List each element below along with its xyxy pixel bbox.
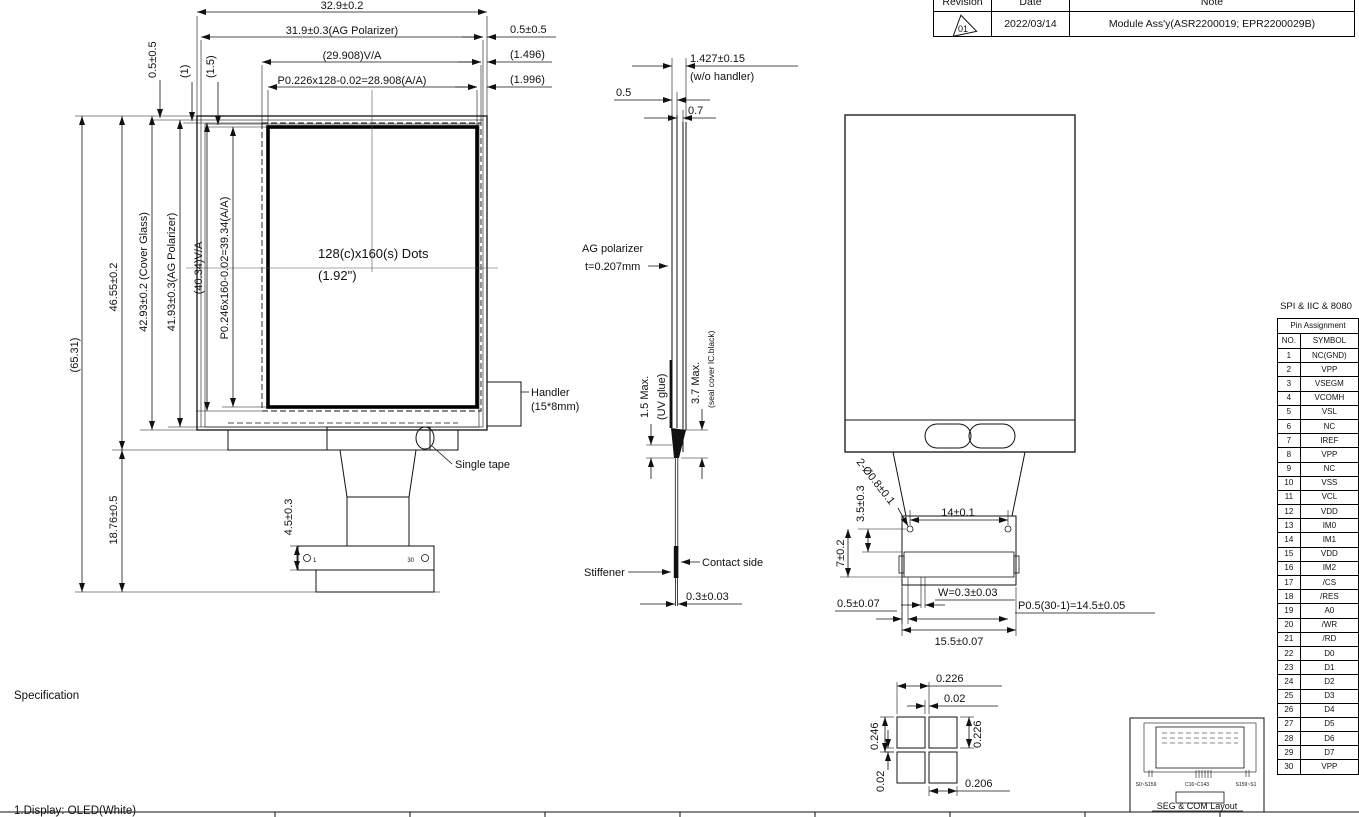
dim-seal-note: (seal cover IC.black): [706, 330, 716, 408]
pin-symbol: D5: [1300, 717, 1358, 731]
dot-pitch-detail: 0.226 0.02 0.246 0.226 0.02 0.206: [869, 673, 1010, 796]
pin-table-header: Pin Assignment: [1278, 319, 1359, 334]
pin-row: 3 VSEGM: [1278, 377, 1359, 391]
dim-pitch-x: 0.226: [936, 673, 964, 685]
pin-symbol: /WR: [1300, 618, 1358, 632]
front-view-top-dimensions: 32.9±0.2 31.9±0.3(AG Polarizer) (29.908)…: [147, 0, 556, 127]
pin-col-no: NO.: [1278, 334, 1301, 349]
seg-com-title: SEG & COM Layout: [1157, 801, 1238, 811]
drawing-sheet: 128(c)x160(s) Dots (1.92") 1 30 Handler …: [0, 0, 1359, 817]
pin-symbol: /CS: [1300, 576, 1358, 590]
pin-table-title: SPI & IIC & 8080: [1272, 301, 1359, 312]
pin-number: 27: [1278, 717, 1301, 731]
pin-row: 9 NC: [1278, 462, 1359, 476]
pin-row: 18 /RES: [1278, 590, 1359, 604]
pin-symbol: NC: [1300, 419, 1358, 433]
dim-height-polarizer: 41.93±0.3(AG Polarizer): [166, 213, 178, 332]
dim-right-1: 0.5±0.5: [510, 24, 547, 36]
pin-number: 22: [1278, 646, 1301, 660]
hole-left: [907, 526, 913, 532]
pin-number: 24: [1278, 675, 1301, 689]
front-view-left-dimensions: (65.31) 46.55±0.2 42.93±0.2 (Cover Glass…: [69, 116, 440, 592]
dim-right-3: (1.996): [510, 74, 545, 86]
pin-symbol: D0: [1300, 646, 1358, 660]
pin-symbol: VSS: [1300, 476, 1358, 490]
pin1-mark: [304, 555, 311, 562]
pin-row: 22 D0: [1278, 646, 1359, 660]
dim-right-2: (1.496): [510, 49, 545, 61]
pin-symbol: VPP: [1300, 448, 1358, 462]
dim-thickness-note: (w/o handler): [690, 71, 754, 83]
stiffener-label: Stiffener: [584, 567, 625, 579]
specification-title: Specification: [14, 688, 177, 704]
pin-symbol: D6: [1300, 732, 1358, 746]
dim-height-aa: P0.246x160-0.02=39.34(A/A): [219, 197, 231, 340]
pin-number: 13: [1278, 519, 1301, 533]
pin-number: 10: [1278, 476, 1301, 490]
revision-mark-cell: 01: [934, 12, 992, 37]
pin-symbol: VDD: [1300, 505, 1358, 519]
active-area-outline: [268, 127, 477, 407]
pin-row: 2 VPP: [1278, 363, 1359, 377]
dim-width-total: 32.9±0.2: [321, 0, 364, 12]
dim-hole-span: 14±0.1: [941, 507, 975, 519]
pin-number: 28: [1278, 732, 1301, 746]
pin-symbol: IM2: [1300, 561, 1358, 575]
pin-number: 11: [1278, 490, 1301, 504]
seg-com-layout: S0~S159 C16~C143 S159~S1 SEG & COM Layou…: [1130, 718, 1264, 812]
pin-number: 26: [1278, 703, 1301, 717]
pin-symbol: D4: [1300, 703, 1358, 717]
dim-fpc-thickness: 0.3±0.03: [686, 591, 729, 603]
pin-number: 20: [1278, 618, 1301, 632]
revision-triangle-icon: 01: [946, 13, 980, 36]
revision-row: 01 2022/03/14 Module Ass'y(ASR2200019; E…: [934, 12, 1355, 37]
pin-symbol: A0: [1300, 604, 1358, 618]
pin-number: 17: [1278, 576, 1301, 590]
pin-table-body: 1 NC(GND) 2 VPP 3 VSEGM 4 VCOMH 5 VSL: [1278, 349, 1359, 775]
pin-symbol: D1: [1300, 661, 1358, 675]
pin-number: 6: [1278, 419, 1301, 433]
pin-row: 21 /RD: [1278, 632, 1359, 646]
pin-symbol: VCOMH: [1300, 391, 1358, 405]
dim-topleft-3: (1.5): [205, 55, 217, 78]
dim-fpc-width: 15.5±0.07: [935, 636, 984, 648]
pin-row: 19 A0: [1278, 604, 1359, 618]
pin-row: 27 D5: [1278, 717, 1359, 731]
pin-number: 30: [1278, 760, 1301, 774]
dim-fpc-length: 18.76±0.5: [108, 496, 120, 545]
pin-symbol: VPP: [1300, 760, 1358, 774]
pin-row: 1 NC(GND): [1278, 349, 1359, 363]
dim-height-total: (65.31): [69, 338, 81, 373]
front-view: 128(c)x160(s) Dots (1.92") 1 30 Handler …: [186, 90, 579, 592]
polarizer-section: [670, 360, 673, 428]
pin-row: 12 VDD: [1278, 505, 1359, 519]
pin-number: 12: [1278, 505, 1301, 519]
pin-symbol: /RD: [1300, 632, 1358, 646]
pin-row: 20 /WR: [1278, 618, 1359, 632]
pin-symbol: IREF: [1300, 434, 1358, 448]
fpc-neck: [340, 450, 416, 497]
polarizer-label: AG polarizer: [582, 243, 643, 255]
dim-finger-width: W=0.3±0.03: [938, 587, 998, 599]
dim-dot-h: 0.226: [972, 720, 984, 748]
dim-fpc-height: 7±0.2: [835, 540, 847, 567]
pin-number: 25: [1278, 689, 1301, 703]
pin-row: 16 IM2: [1278, 561, 1359, 575]
com-label: C16~C143: [1185, 782, 1209, 788]
viewing-area-outline: [262, 123, 481, 411]
dim-back-glass: 0.7: [688, 105, 703, 117]
seal-wedge: [671, 428, 686, 458]
pin-row: 7 IREF: [1278, 434, 1359, 448]
pin-symbol: D2: [1300, 675, 1358, 689]
hole-right: [1005, 526, 1011, 532]
mechanical-drawing: 128(c)x160(s) Dots (1.92") 1 30 Handler …: [0, 0, 1359, 817]
specification-block: Specification 1.Display: OLED(White) 2.D…: [14, 655, 177, 817]
dim-seal: 3.7 Max.: [690, 362, 702, 404]
pin-col-symbol: SYMBOL: [1300, 334, 1358, 349]
display-size-label: 128(c)x160(s) Dots: [318, 246, 429, 261]
pin-number: 8: [1278, 448, 1301, 462]
pin-symbol: IM1: [1300, 533, 1358, 547]
dim-finger-pitch: P0.5(30-1)=14.5±0.05: [1018, 600, 1125, 612]
dim-thickness: 1.427±0.15: [690, 53, 745, 65]
pin-symbol: VSL: [1300, 405, 1358, 419]
seg-right-label: S159~S1: [1236, 782, 1257, 788]
dim-uv-glue-note: (UV glue): [656, 374, 668, 420]
pin-symbol: VPP: [1300, 363, 1358, 377]
pin-symbol: D3: [1300, 689, 1358, 703]
back-view: 14±0.1 3.5±0.3 7±0.2 2-Ø0.8±0.1 W=0.3±0.…: [835, 115, 1155, 648]
dim-finger-margin: 0.5±0.07: [837, 598, 880, 610]
pin30-mark: [422, 555, 429, 562]
date-header: Date: [992, 0, 1070, 12]
pin-row: 23 D1: [1278, 661, 1359, 675]
dim-width-va: (29.908)V/A: [323, 50, 382, 62]
dim-uv-glue: 1.5 Max.: [639, 376, 651, 418]
seg-left-label: S0~S159: [1136, 782, 1157, 788]
dim-pitch-y: 0.246: [869, 722, 881, 750]
pin-row: 4 VCOMH: [1278, 391, 1359, 405]
pin-row: 24 D2: [1278, 675, 1359, 689]
pin-number: 7: [1278, 434, 1301, 448]
dim-gap-x: 0.02: [944, 693, 965, 705]
revision-date: 2022/03/14: [992, 12, 1070, 37]
pin-row: 10 VSS: [1278, 476, 1359, 490]
handler-size-label: (15*8mm): [531, 401, 579, 413]
pin-row: 15 VDD: [1278, 547, 1359, 561]
pin-number: 1: [1278, 349, 1301, 363]
pin-number: 29: [1278, 746, 1301, 760]
handler-block: [487, 382, 521, 426]
note-header: Note: [1070, 0, 1355, 12]
pin-symbol: IM0: [1300, 519, 1358, 533]
dim-topleft-2: (1): [179, 65, 191, 78]
pin-row: 13 IM0: [1278, 519, 1359, 533]
pin-row: 11 VCL: [1278, 490, 1359, 504]
specification-items: 1.Display: OLED(White) 2.Dot Matrix: 128…: [14, 737, 177, 817]
dim-width-aa: P0.226x128-0.02=28.908(A/A): [278, 75, 427, 87]
pin-number: 3: [1278, 377, 1301, 391]
pin-row: 6 NC: [1278, 419, 1359, 433]
pin-row: 25 D3: [1278, 689, 1359, 703]
display-diagonal-label: (1.92"): [318, 268, 357, 283]
pin-number: 18: [1278, 590, 1301, 604]
pin-row: 28 D6: [1278, 732, 1359, 746]
pin-symbol: VDD: [1300, 547, 1358, 561]
single-tape-label: Single tape: [455, 459, 510, 471]
connector-fingers: [904, 552, 1014, 577]
pin-number: 19: [1278, 604, 1301, 618]
dim-connector-height: 4.5±0.3: [283, 499, 295, 536]
dim-topleft-1: 0.5±0.5: [147, 41, 159, 78]
pin-row: 8 VPP: [1278, 448, 1359, 462]
revision-header: Revision: [934, 0, 992, 12]
pin-symbol: NC(GND): [1300, 349, 1358, 363]
specification-item: 1.Display: OLED(White): [14, 803, 177, 817]
pin-row: 26 D4: [1278, 703, 1359, 717]
polarizer-thickness: t=0.207mm: [585, 261, 640, 273]
pin-row: 29 D7: [1278, 746, 1359, 760]
pin30-label: 30: [407, 558, 414, 564]
pin-assignment-table: Pin Assignment NO. SYMBOL 1 NC(GND) 2 VP…: [1277, 318, 1359, 775]
pin-symbol: VCL: [1300, 490, 1358, 504]
dim-gap-y: 0.02: [875, 771, 887, 792]
pin-number: 4: [1278, 391, 1301, 405]
pin-row: 17 /CS: [1278, 576, 1359, 590]
pin-symbol: D7: [1300, 746, 1358, 760]
dim-front-glass: 0.5: [616, 87, 631, 99]
pin-row: 5 VSL: [1278, 405, 1359, 419]
dim-height-va: (40.34)V/A: [193, 241, 205, 294]
dim-dot-w: 0.206: [965, 778, 993, 790]
pin-symbol: /RES: [1300, 590, 1358, 604]
pin-number: 5: [1278, 405, 1301, 419]
dim-height-module: 46.55±0.2: [108, 263, 120, 312]
pin1-label: 1: [313, 558, 317, 564]
contact-side-label: Contact side: [702, 557, 763, 569]
pin-symbol: VSEGM: [1300, 377, 1358, 391]
revision-table: Revision Date Note 01 2022/03/14 Module …: [933, 0, 1355, 37]
revision-note: Module Ass'y(ASR2200019; EPR2200029B): [1070, 12, 1355, 37]
sheet-frame: [0, 812, 1359, 817]
pin-number: 9: [1278, 462, 1301, 476]
stiffener-section: [674, 546, 679, 578]
pin-number: 15: [1278, 547, 1301, 561]
pin-number: 14: [1278, 533, 1301, 547]
back-tape-band: [845, 420, 1075, 452]
pin-number: 21: [1278, 632, 1301, 646]
svg-text:01: 01: [957, 24, 967, 34]
pin-row: 30 VPP: [1278, 760, 1359, 774]
pin-number: 23: [1278, 661, 1301, 675]
pin-symbol: NC: [1300, 462, 1358, 476]
side-view: 1.427±0.15 (w/o handler) 0.5 0.7 AG pola…: [582, 53, 798, 606]
stiffener-block-front: [316, 570, 434, 592]
dim-width-polarizer: 31.9±0.3(AG Polarizer): [286, 25, 398, 37]
pin-number: 16: [1278, 561, 1301, 575]
handler-label: Handler: [531, 387, 570, 399]
dim-hole-offset: 3.5±0.3: [855, 485, 867, 522]
dim-height-glass: 42.93±0.2 (Cover Glass): [138, 212, 150, 332]
pin-number: 2: [1278, 363, 1301, 377]
pin-row: 14 IM1: [1278, 533, 1359, 547]
back-connector: [902, 516, 1016, 585]
